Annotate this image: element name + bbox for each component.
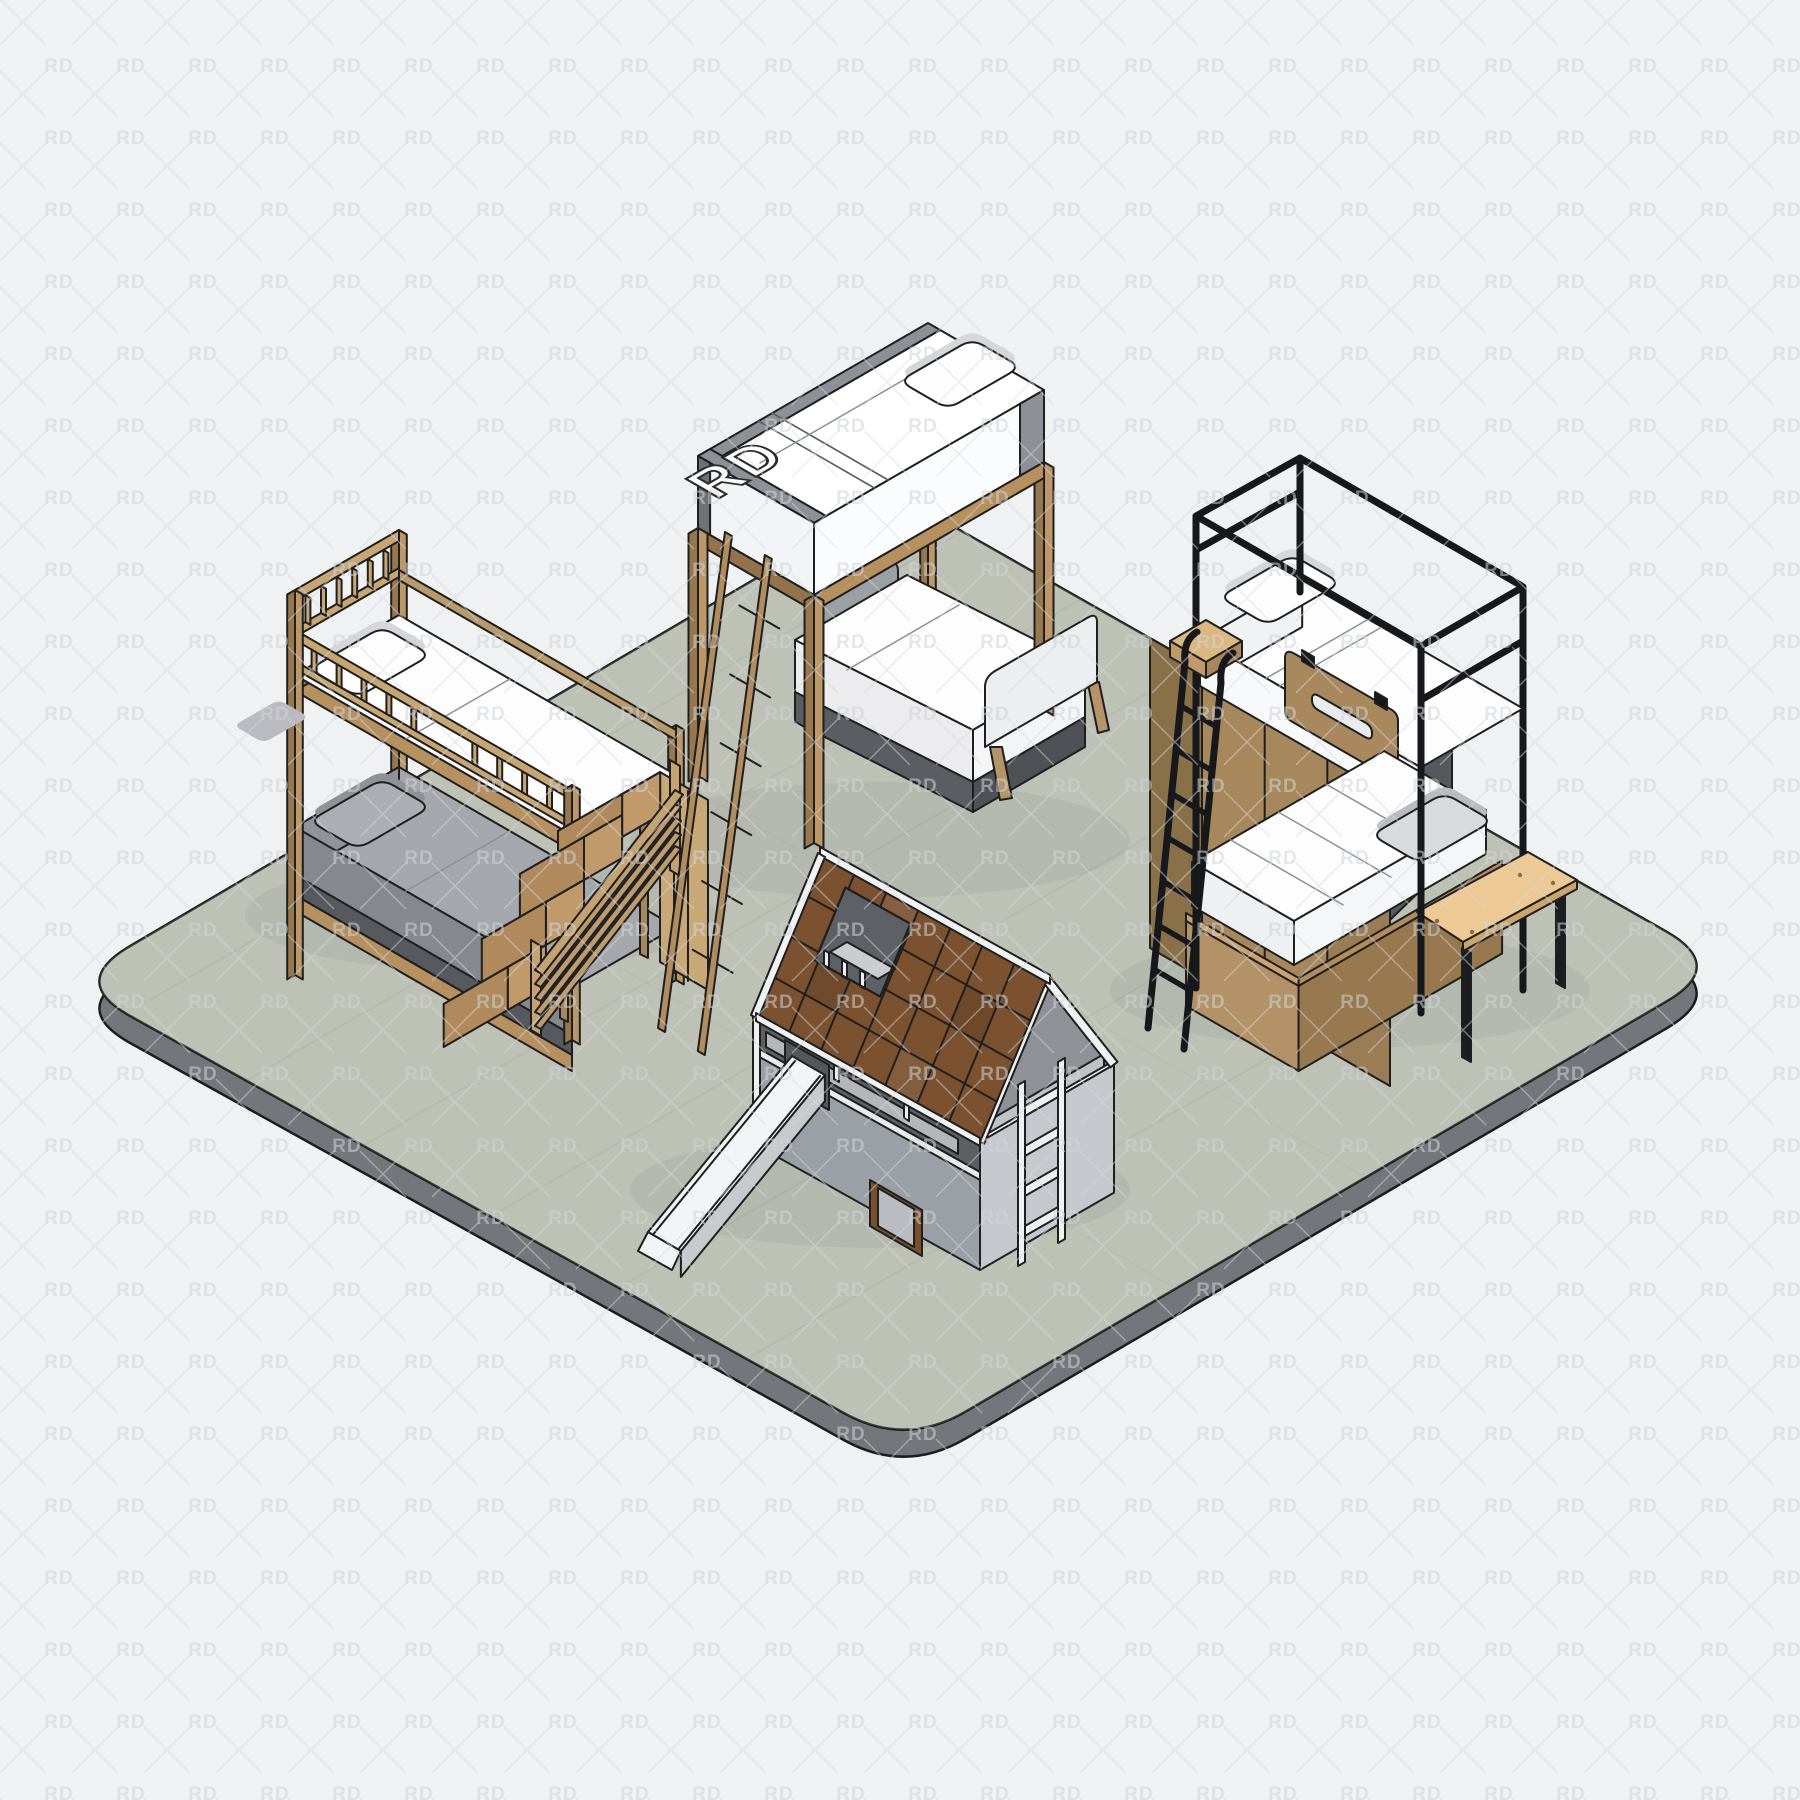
isometric-scene: RD bbox=[0, 0, 1800, 1800]
watermark-pattern-layer bbox=[0, 0, 1800, 1800]
revit-bunk-beds-render: RD bbox=[0, 0, 1800, 1800]
